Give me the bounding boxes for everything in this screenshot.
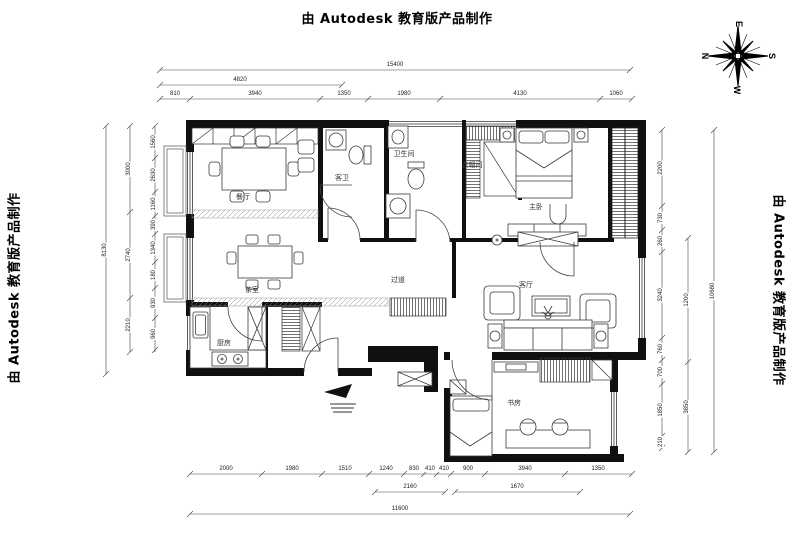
dim-label: 830	[408, 466, 420, 472]
dim-label: 960	[151, 328, 157, 340]
dim-label: 390	[151, 219, 157, 231]
dim-label: 1240	[378, 466, 393, 472]
dim-label: 3940	[247, 91, 262, 97]
floor-plan-page: 由 Autodesk 教育版产品制作 由 Autodesk 教育版产品制作 由 …	[0, 0, 795, 537]
dim-label: 700	[658, 366, 664, 378]
dim-label: 2740	[126, 247, 132, 262]
room-label-master: 主卧	[529, 202, 543, 212]
dim-label: 10680	[710, 282, 716, 301]
dim-label: 810	[169, 91, 181, 97]
dim-label: 2160	[402, 484, 417, 490]
room-label-cloak: 衣帽间	[462, 160, 483, 170]
dim-label: 3000	[126, 161, 132, 176]
dim-label: 2630	[151, 167, 157, 182]
dim-label: 1980	[396, 91, 411, 97]
dim-label: 1060	[608, 91, 623, 97]
room-label-tea: 茶室	[245, 285, 259, 295]
dim-label: 1160	[151, 197, 157, 212]
dim-label: 8130	[102, 242, 108, 257]
room-label-bath2: 客卫	[335, 173, 349, 183]
room-label-living: 客厅	[519, 280, 533, 290]
room-label-hall: 过道	[391, 275, 405, 285]
dim-label: 2200	[658, 160, 664, 175]
dim-label: 210	[658, 436, 664, 448]
room-label-bath: 卫生间	[394, 149, 415, 159]
dim-label: 1560	[151, 134, 157, 149]
dimension-lines	[0, 0, 795, 537]
dim-label: 1350	[336, 91, 351, 97]
dim-label: 930	[151, 297, 157, 309]
dim-label: 1510	[337, 466, 352, 472]
dim-label: 410	[438, 466, 450, 472]
dim-label: 410	[424, 466, 436, 472]
dim-label: 760	[658, 343, 664, 355]
dim-label: 180	[151, 269, 157, 281]
dim-label: 900	[462, 466, 474, 472]
dim-label: 1850	[658, 402, 664, 417]
dim-label: 3240	[658, 287, 664, 302]
dim-label: 4130	[512, 91, 527, 97]
dim-label: 730	[658, 212, 664, 224]
dim-label: 1350	[590, 466, 605, 472]
dim-label: 3940	[517, 466, 532, 472]
dim-label: 1670	[509, 484, 524, 490]
dim-label: 4820	[232, 77, 247, 83]
dim-label: 15400	[386, 62, 405, 68]
dim-label: 1980	[284, 466, 299, 472]
dim-label: 11600	[391, 506, 409, 512]
dim-label: 2210	[126, 317, 132, 332]
dim-label: 1200	[684, 292, 690, 307]
dim-label: 2000	[218, 466, 233, 472]
dim-label: 260	[658, 235, 664, 247]
room-label-study: 书房	[507, 398, 521, 408]
dim-label: 3850	[684, 399, 690, 414]
dim-label: 1340	[151, 240, 157, 255]
room-label-dining: 餐厅	[236, 192, 250, 202]
room-label-kitchen: 厨房	[217, 338, 231, 348]
